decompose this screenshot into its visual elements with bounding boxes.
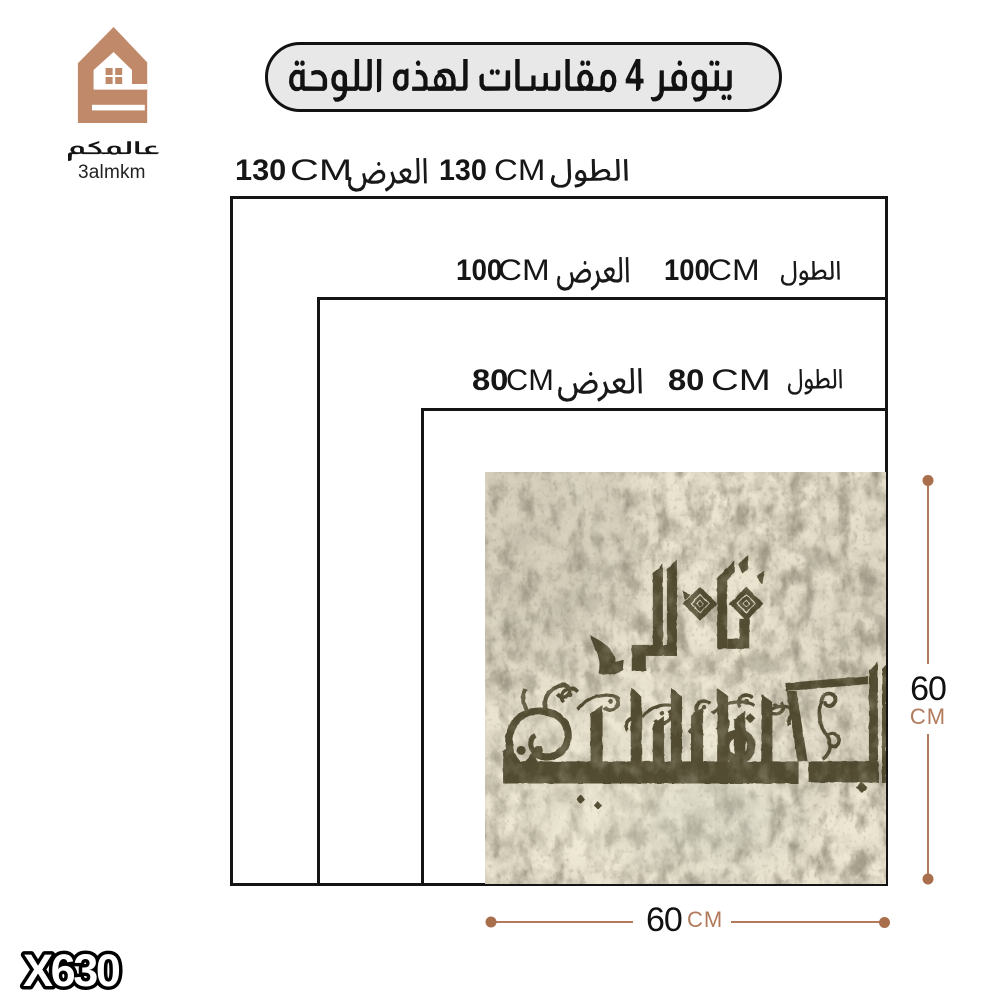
svg-text:X630: X630 — [23, 945, 120, 996]
